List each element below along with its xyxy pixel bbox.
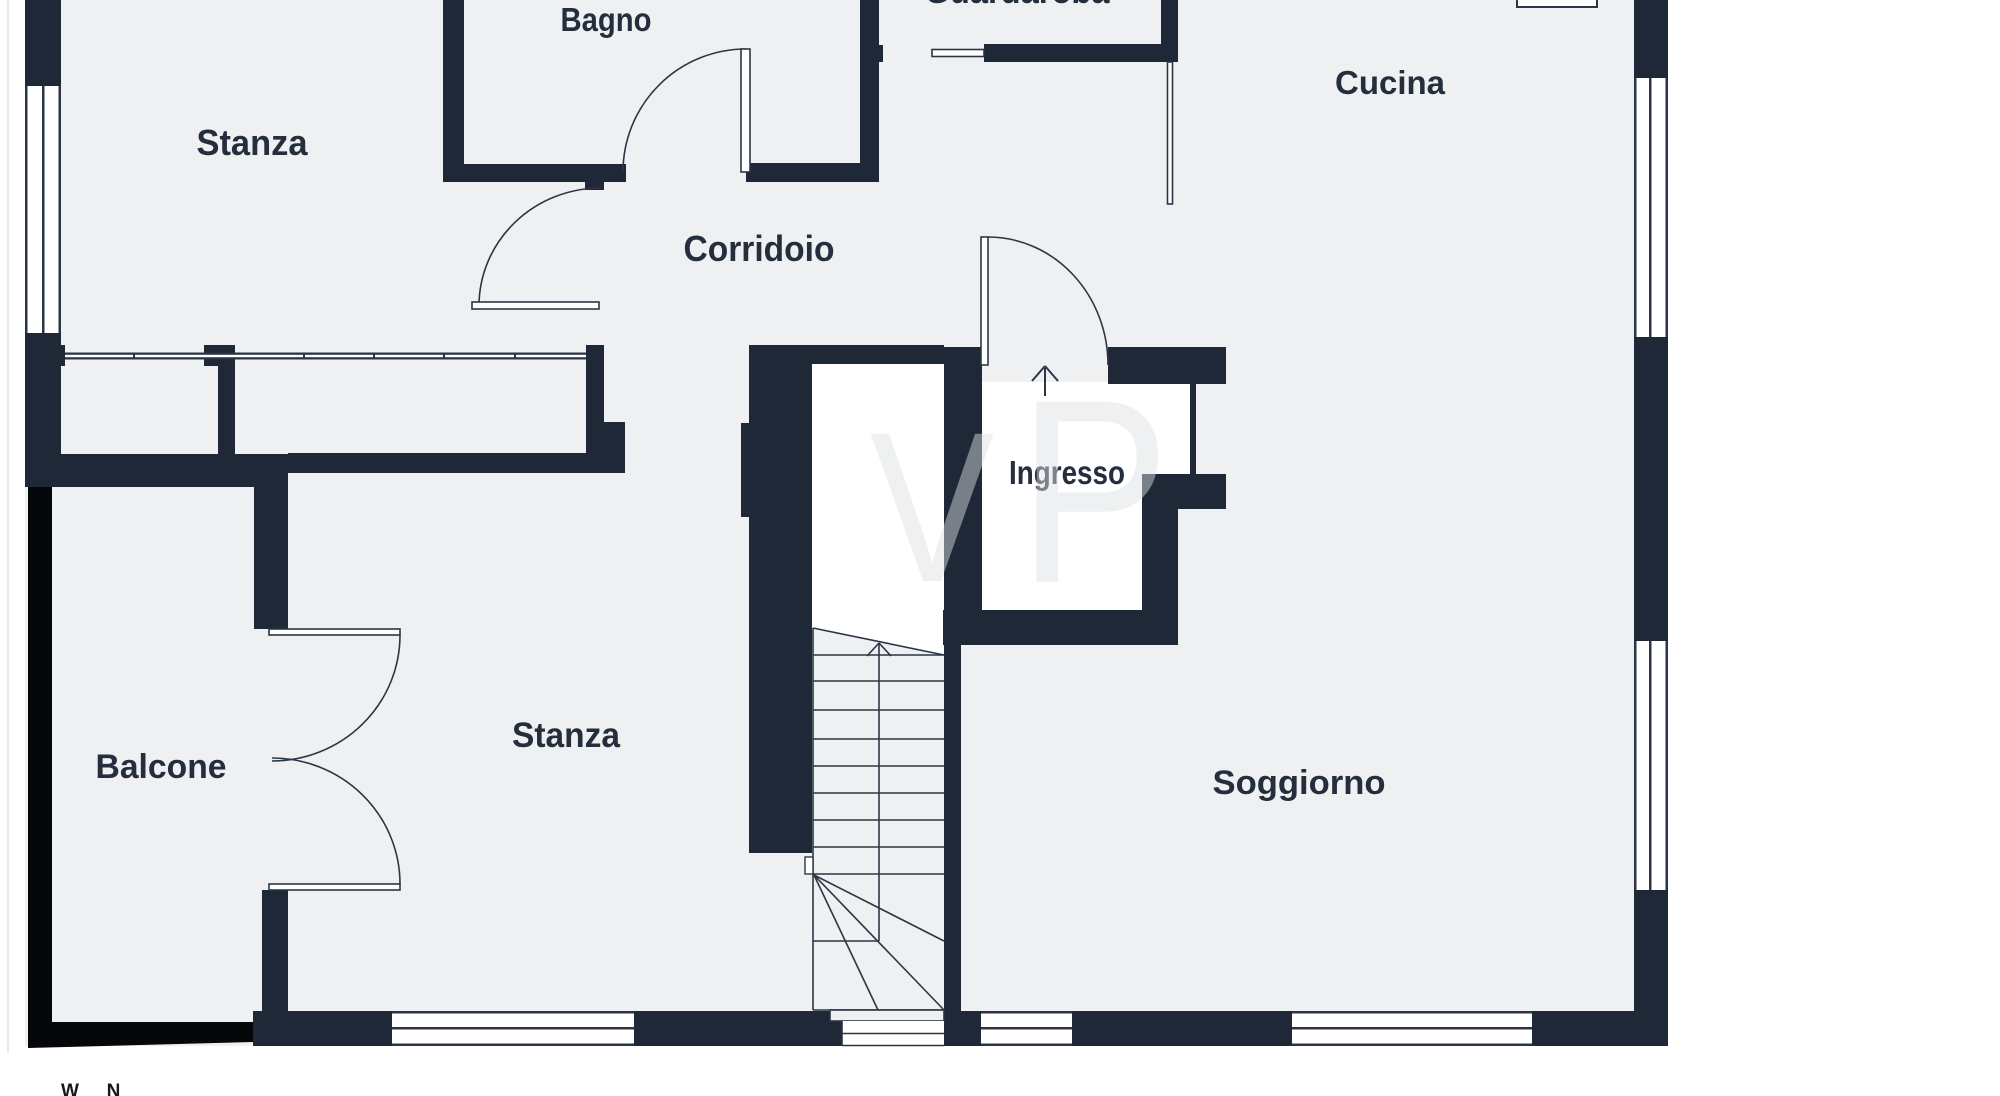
svg-text:Soggiorno: Soggiorno: [1213, 764, 1386, 802]
svg-text:Corridoio: Corridoio: [684, 228, 835, 269]
svg-text:V: V: [870, 387, 994, 627]
svg-text:Balcone: Balcone: [96, 748, 227, 786]
svg-text:W: W: [61, 1081, 79, 1096]
svg-text:Cucina: Cucina: [1335, 64, 1446, 101]
svg-text:Stanza: Stanza: [512, 716, 621, 755]
svg-text:Stanza: Stanza: [197, 122, 309, 163]
svg-text:P: P: [1018, 346, 1170, 638]
svg-text:N: N: [107, 1081, 121, 1096]
svg-text:Bagno: Bagno: [561, 1, 652, 38]
svg-text:Guardaroba: Guardaroba: [925, 0, 1110, 11]
